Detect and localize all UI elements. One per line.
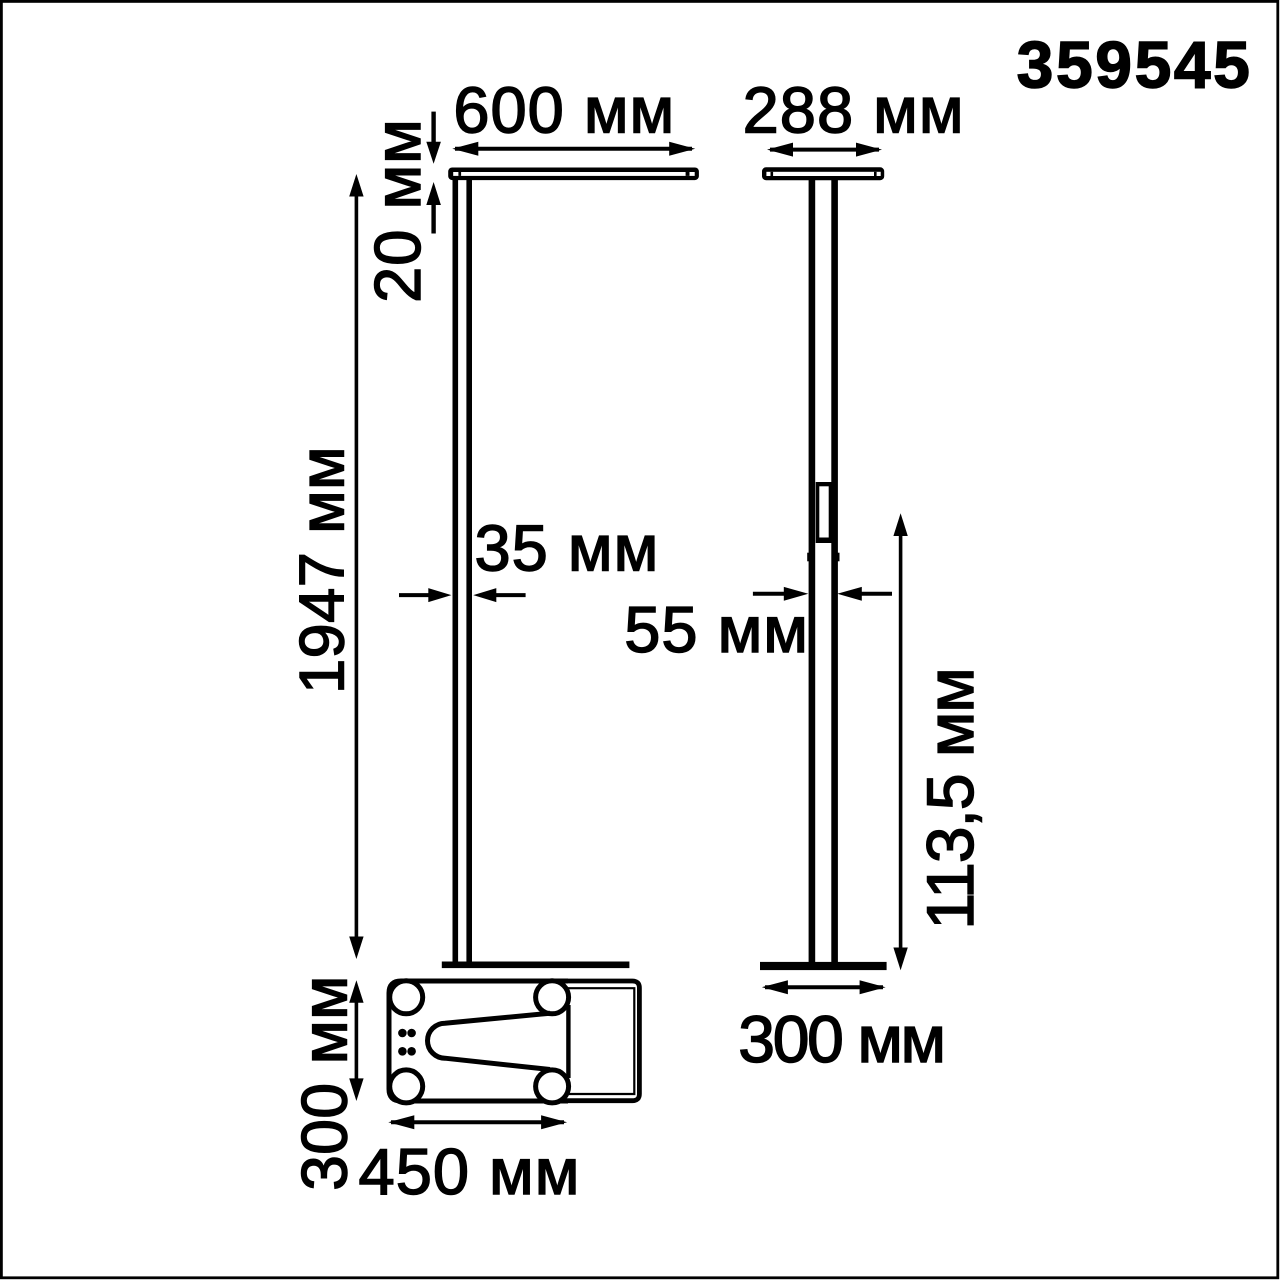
svg-text:35 мм: 35 мм — [475, 512, 660, 585]
svg-text:300 мм: 300 мм — [289, 975, 361, 1191]
svg-text:20 мм: 20 мм — [361, 118, 434, 303]
svg-text:55 мм: 55 мм — [624, 593, 809, 666]
svg-text:359545: 359545 — [1017, 28, 1253, 102]
svg-text:1947 мм: 1947 мм — [288, 446, 358, 694]
svg-text:300 мм: 300 мм — [738, 1002, 943, 1076]
svg-text:600 мм: 600 мм — [453, 74, 675, 147]
svg-text:113,5 мм: 113,5 мм — [913, 668, 987, 929]
svg-text:450 мм: 450 мм — [359, 1135, 581, 1208]
svg-text:288 мм: 288 мм — [743, 74, 965, 147]
